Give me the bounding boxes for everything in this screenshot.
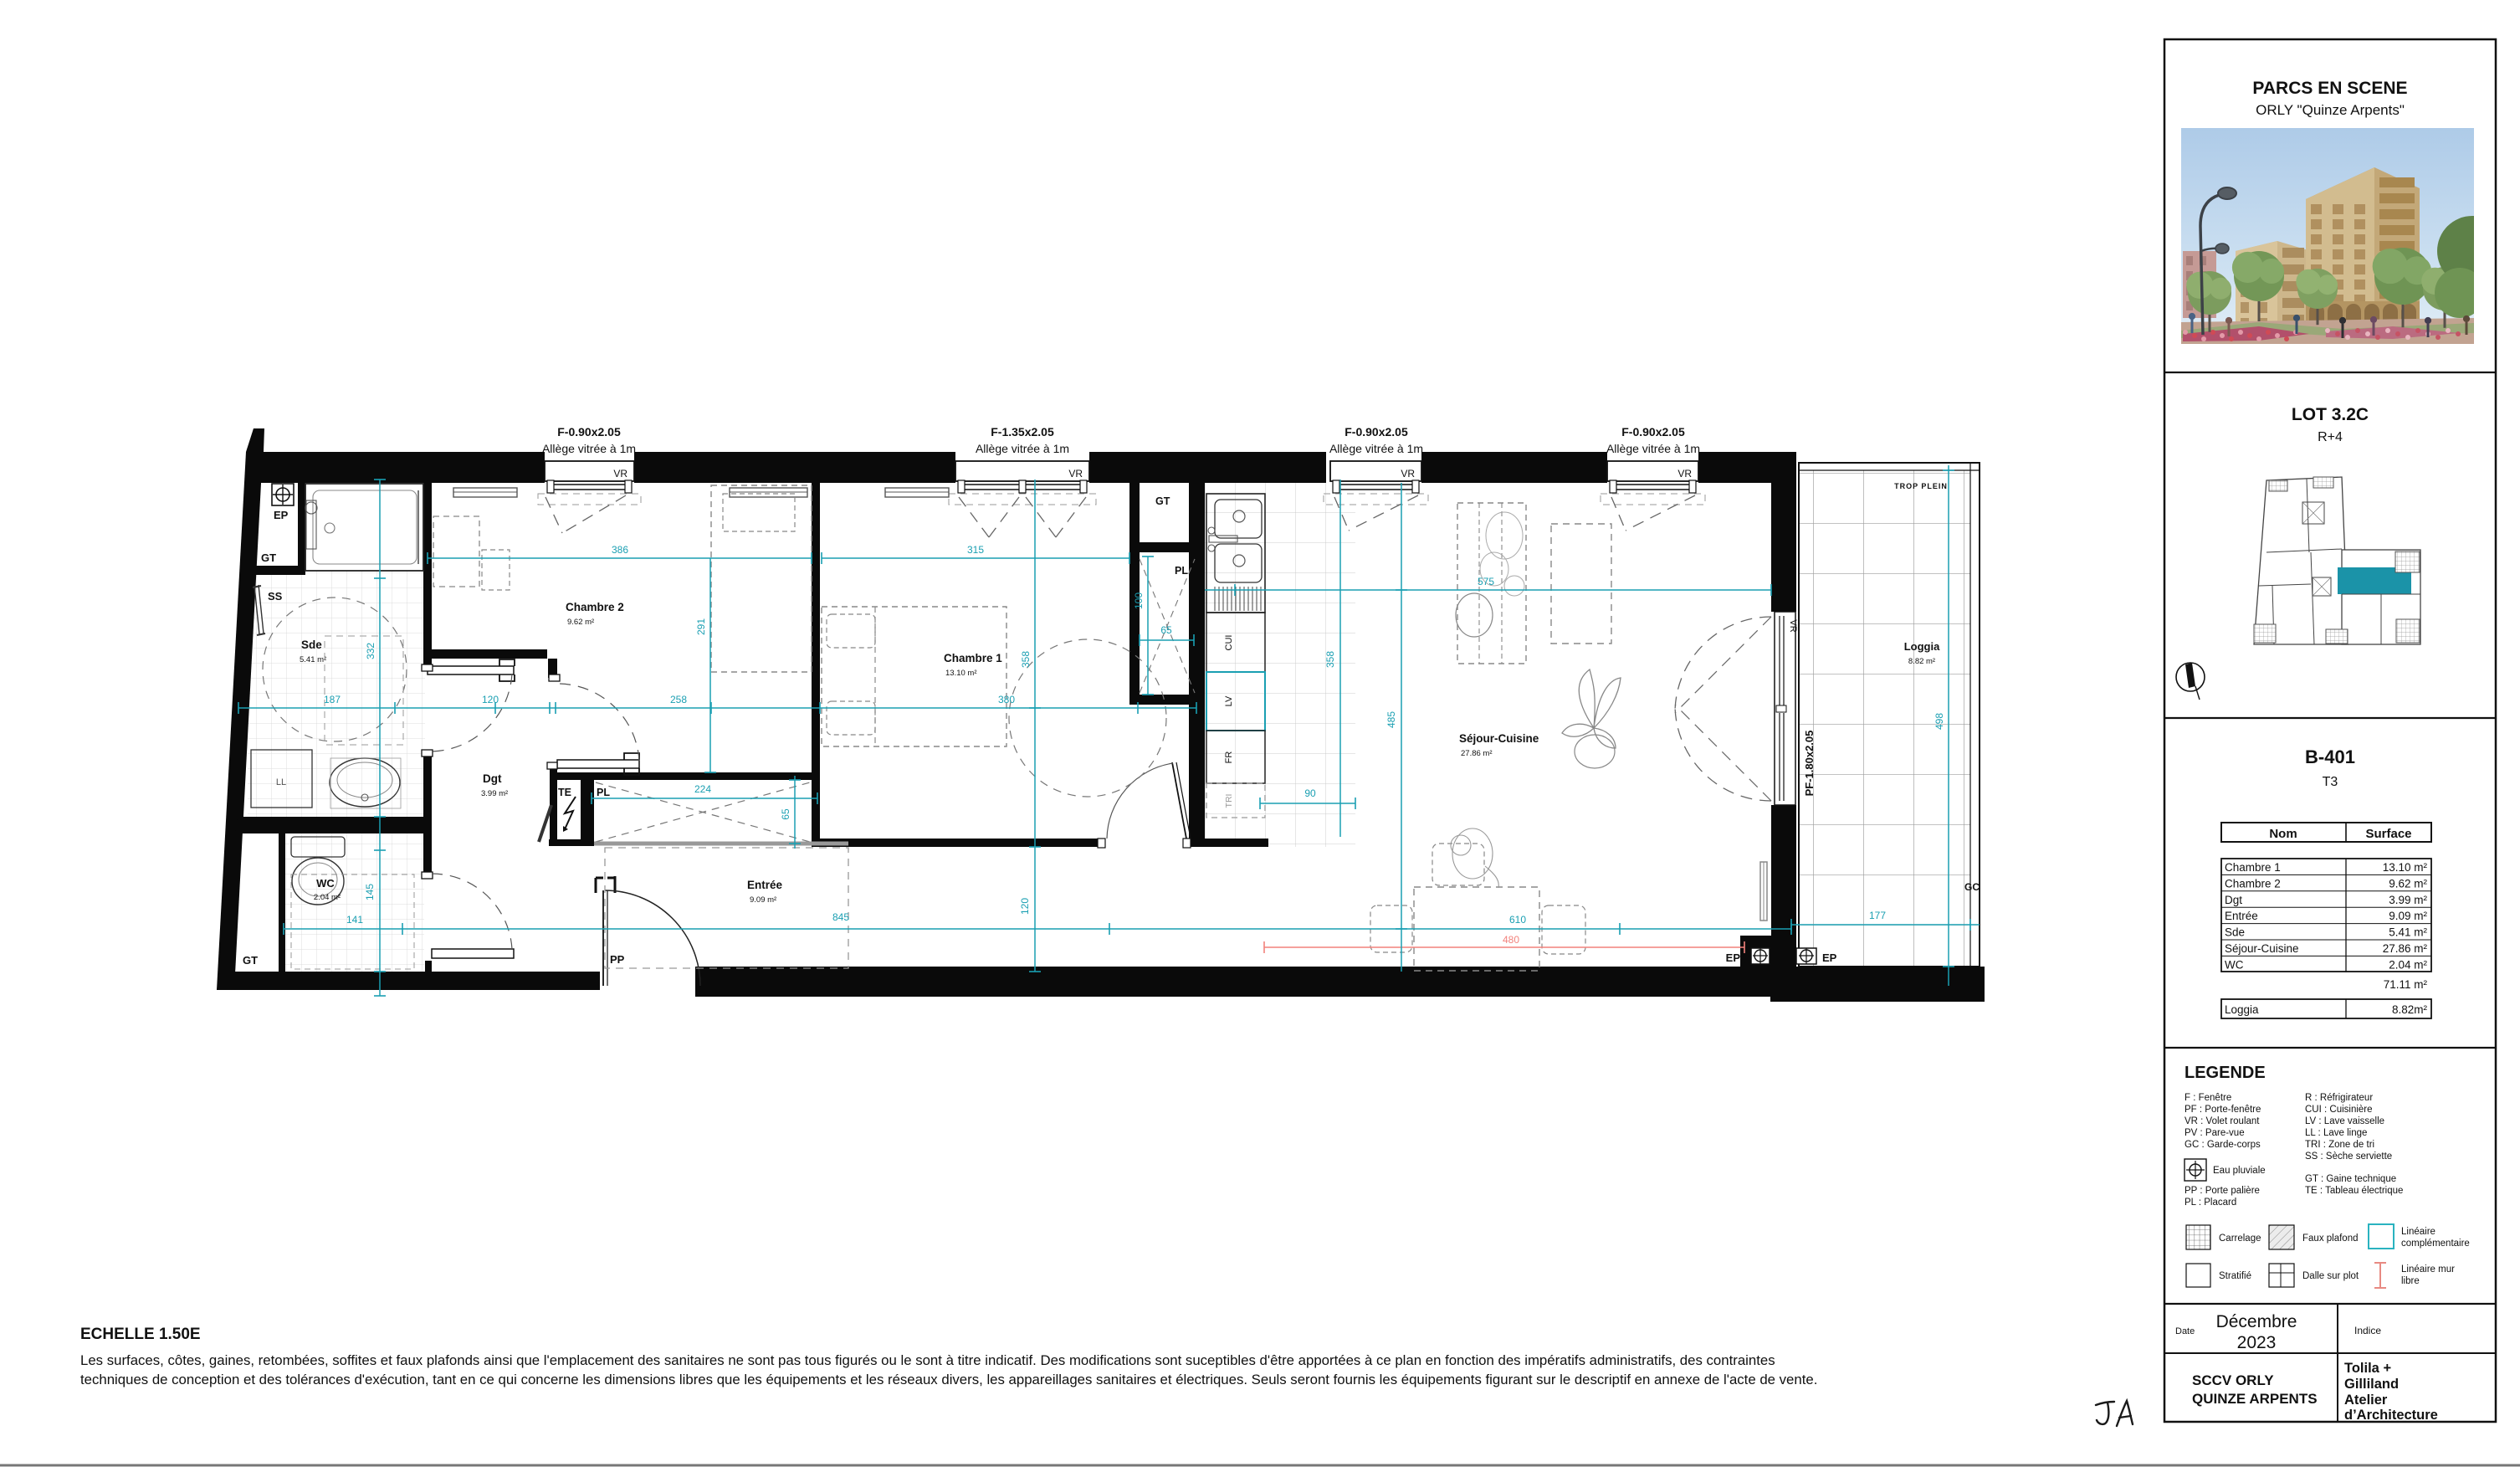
svg-text:VR: VR bbox=[1401, 468, 1415, 480]
svg-text:332: 332 bbox=[365, 643, 376, 659]
svg-text:Allège vitrée à 1m: Allège vitrée à 1m bbox=[1606, 442, 1700, 455]
svg-text:27.86 m²: 27.86 m² bbox=[2383, 942, 2428, 955]
svg-text:480: 480 bbox=[1503, 934, 1519, 946]
svg-text:Chambre 2: Chambre 2 bbox=[2225, 877, 2281, 890]
svg-text:5.41 m²: 5.41 m² bbox=[2389, 926, 2427, 939]
svg-text:GC : Garde-corps: GC : Garde-corps bbox=[2185, 1140, 2261, 1150]
svg-text:2.04 m²: 2.04 m² bbox=[314, 893, 341, 902]
svg-text:Allège vitrée à 1m: Allège vitrée à 1m bbox=[542, 442, 636, 455]
svg-text:8.82m²: 8.82m² bbox=[2392, 1003, 2428, 1016]
svg-text:Carrelage: Carrelage bbox=[2219, 1234, 2261, 1244]
svg-text:PL: PL bbox=[597, 787, 610, 798]
svg-text:CUI: CUI bbox=[1224, 635, 1234, 651]
svg-text:3.99 m²: 3.99 m² bbox=[2389, 894, 2427, 906]
svg-text:Dgt: Dgt bbox=[483, 772, 502, 785]
svg-text:TE: TE bbox=[558, 787, 571, 798]
svg-text:R : Réfrigirateur: R : Réfrigirateur bbox=[2305, 1093, 2373, 1103]
svg-text:EP: EP bbox=[274, 509, 289, 521]
svg-text:TROP PLEIN: TROP PLEIN bbox=[1894, 482, 1948, 490]
svg-text:LEGENDE: LEGENDE bbox=[2185, 1064, 2266, 1082]
svg-text:SCCV ORLY: SCCV ORLY bbox=[2192, 1372, 2274, 1388]
svg-text:FR: FR bbox=[1224, 751, 1234, 764]
svg-text:Allège vitrée à 1m: Allège vitrée à 1m bbox=[976, 442, 1069, 455]
svg-text:2023: 2023 bbox=[2237, 1333, 2277, 1352]
svg-text:ORLY "Quinze Arpents": ORLY "Quinze Arpents" bbox=[2256, 102, 2405, 118]
svg-text:498: 498 bbox=[1934, 713, 1945, 730]
svg-text:Dalle sur plot: Dalle sur plot bbox=[2302, 1271, 2359, 1281]
svg-text:Décembre: Décembre bbox=[2216, 1312, 2297, 1331]
svg-text:Eau pluviale: Eau pluviale bbox=[2213, 1166, 2266, 1176]
svg-text:LV: LV bbox=[1224, 695, 1234, 706]
svg-text:Date: Date bbox=[2175, 1326, 2195, 1336]
svg-text:Les surfaces, côtes, gaines, r: Les surfaces, côtes, gaines, retombées, … bbox=[80, 1352, 1775, 1368]
svg-text:TE : Tableau électrique: TE : Tableau électrique bbox=[2305, 1186, 2403, 1196]
svg-text:GT: GT bbox=[243, 954, 258, 967]
svg-text:120: 120 bbox=[1019, 898, 1031, 915]
svg-text:Stratifié: Stratifié bbox=[2219, 1271, 2251, 1281]
svg-text:LL : Lave linge: LL : Lave linge bbox=[2305, 1128, 2367, 1138]
svg-text:Indice: Indice bbox=[2354, 1325, 2381, 1336]
svg-text:EP: EP bbox=[1822, 951, 1837, 964]
svg-text:5.41 m²: 5.41 m² bbox=[300, 655, 326, 664]
svg-text:CUI : Cuisinière: CUI : Cuisinière bbox=[2305, 1105, 2373, 1115]
svg-text:complémentaire: complémentaire bbox=[2401, 1239, 2470, 1249]
svg-text:Gilliland: Gilliland bbox=[2344, 1377, 2399, 1392]
svg-text:R+4: R+4 bbox=[2318, 430, 2343, 444]
svg-text:27.86 m²: 27.86 m² bbox=[1461, 749, 1493, 758]
svg-text:F-0.90x2.05: F-0.90x2.05 bbox=[1621, 425, 1685, 439]
svg-text:291: 291 bbox=[695, 618, 707, 635]
svg-text:PV : Pare-vue: PV : Pare-vue bbox=[2185, 1128, 2245, 1138]
svg-text:SS: SS bbox=[268, 590, 283, 603]
svg-text:Chambre 1: Chambre 1 bbox=[944, 652, 1002, 664]
svg-text:845: 845 bbox=[832, 911, 849, 923]
svg-text:Linéaire mur: Linéaire mur bbox=[2401, 1264, 2455, 1275]
svg-text:145: 145 bbox=[364, 884, 376, 900]
svg-text:8.82 m²: 8.82 m² bbox=[1908, 657, 1935, 666]
svg-text:PF-1.80x2.05: PF-1.80x2.05 bbox=[1803, 731, 1816, 797]
svg-text:LOT 3.2C: LOT 3.2C bbox=[2292, 405, 2369, 424]
svg-text:LV : Lave vaisselle: LV : Lave vaisselle bbox=[2305, 1116, 2384, 1126]
svg-text:9.09 m²: 9.09 m² bbox=[2389, 910, 2427, 922]
svg-text:358: 358 bbox=[1324, 651, 1336, 668]
svg-text:Surface: Surface bbox=[2365, 827, 2411, 841]
svg-text:LL: LL bbox=[276, 777, 286, 787]
svg-text:EP: EP bbox=[1726, 951, 1741, 964]
svg-text:VR: VR bbox=[613, 468, 627, 480]
svg-text:485: 485 bbox=[1385, 711, 1397, 728]
svg-text:Allège vitrée à 1m: Allège vitrée à 1m bbox=[1329, 442, 1423, 455]
svg-text:PP : Porte palière: PP : Porte palière bbox=[2185, 1186, 2260, 1196]
svg-text:Sde: Sde bbox=[301, 639, 322, 651]
svg-text:F-0.90x2.05: F-0.90x2.05 bbox=[1345, 425, 1408, 439]
svg-text:d’Architecture: d’Architecture bbox=[2344, 1408, 2438, 1423]
svg-text:177: 177 bbox=[1869, 910, 1886, 921]
svg-text:380: 380 bbox=[998, 694, 1015, 705]
svg-text:2.04 m²: 2.04 m² bbox=[2389, 958, 2427, 971]
svg-text:F : Fenêtre: F : Fenêtre bbox=[2185, 1093, 2231, 1103]
svg-text:90: 90 bbox=[1304, 787, 1316, 799]
svg-text:120: 120 bbox=[482, 694, 499, 705]
svg-text:F-0.90x2.05: F-0.90x2.05 bbox=[557, 425, 621, 439]
svg-text:Séjour-Cuisine: Séjour-Cuisine bbox=[2225, 942, 2299, 955]
svg-text:224: 224 bbox=[694, 783, 711, 795]
svg-text:9.62 m²: 9.62 m² bbox=[2389, 877, 2427, 890]
svg-text:610: 610 bbox=[1509, 914, 1526, 926]
svg-text:13.10 m²: 13.10 m² bbox=[945, 669, 977, 678]
svg-text:Loggia: Loggia bbox=[2225, 1003, 2259, 1016]
svg-text:VR: VR bbox=[1788, 619, 1798, 632]
svg-text:71.11 m²: 71.11 m² bbox=[2384, 978, 2428, 991]
svg-text:B-401: B-401 bbox=[2305, 746, 2355, 767]
svg-text:358: 358 bbox=[1020, 651, 1032, 668]
svg-text:TRI : Zone de tri: TRI : Zone de tri bbox=[2305, 1140, 2374, 1150]
svg-text:3.99 m²: 3.99 m² bbox=[481, 789, 508, 798]
svg-text:T3: T3 bbox=[2323, 775, 2338, 789]
svg-text:libre: libre bbox=[2401, 1276, 2420, 1286]
svg-text:PP: PP bbox=[610, 953, 625, 966]
svg-text:Entrée: Entrée bbox=[2225, 910, 2258, 922]
svg-text:Faux plafond: Faux plafond bbox=[2302, 1234, 2359, 1244]
svg-text:Dgt: Dgt bbox=[2225, 894, 2242, 906]
svg-text:PARCS EN SCENE: PARCS EN SCENE bbox=[2252, 79, 2407, 98]
svg-text:386: 386 bbox=[612, 544, 628, 556]
svg-text:GT : Gaine technique: GT : Gaine technique bbox=[2305, 1174, 2396, 1184]
svg-text:13.10 m²: 13.10 m² bbox=[2383, 861, 2428, 874]
svg-text:F-1.35x2.05: F-1.35x2.05 bbox=[991, 425, 1054, 439]
svg-text:315: 315 bbox=[967, 544, 984, 556]
svg-text:SS : Sèche serviette: SS : Sèche serviette bbox=[2305, 1151, 2392, 1162]
svg-text:ECHELLE 1.50E: ECHELLE 1.50E bbox=[80, 1326, 201, 1343]
svg-text:Atelier: Atelier bbox=[2344, 1393, 2388, 1408]
svg-text:VR: VR bbox=[1677, 468, 1692, 480]
svg-text:Chambre 1: Chambre 1 bbox=[2225, 861, 2281, 874]
svg-text:9.09 m²: 9.09 m² bbox=[750, 895, 776, 905]
svg-text:Séjour-Cuisine: Séjour-Cuisine bbox=[1459, 732, 1539, 745]
svg-text:PL: PL bbox=[1175, 565, 1188, 577]
svg-text:Linéaire: Linéaire bbox=[2401, 1227, 2435, 1237]
svg-text:WC: WC bbox=[2225, 958, 2244, 971]
svg-text:Entrée: Entrée bbox=[747, 879, 783, 891]
svg-text:Chambre 2: Chambre 2 bbox=[566, 601, 624, 613]
svg-text:Nom: Nom bbox=[2269, 827, 2297, 841]
svg-text:VR: VR bbox=[1068, 468, 1083, 480]
svg-text:PL : Placard: PL : Placard bbox=[2185, 1198, 2236, 1208]
svg-text:TRI: TRI bbox=[1224, 794, 1234, 808]
svg-text:Loggia: Loggia bbox=[1904, 640, 1940, 653]
svg-text:575: 575 bbox=[1478, 576, 1494, 587]
svg-text:Tolila +: Tolila + bbox=[2344, 1361, 2391, 1376]
svg-text:WC: WC bbox=[316, 877, 335, 890]
svg-text:258: 258 bbox=[670, 694, 687, 705]
svg-text:GT: GT bbox=[1155, 495, 1170, 507]
svg-text:techniques de conception et de: techniques de conception et des toléranc… bbox=[80, 1372, 1817, 1387]
svg-text:VR : Volet roulant: VR : Volet roulant bbox=[2185, 1116, 2260, 1126]
svg-text:141: 141 bbox=[346, 914, 363, 926]
svg-text:PF : Porte-fenêtre: PF : Porte-fenêtre bbox=[2185, 1105, 2261, 1115]
svg-text:65: 65 bbox=[1160, 624, 1172, 636]
svg-text:65: 65 bbox=[780, 808, 791, 820]
svg-text:9.62 m²: 9.62 m² bbox=[567, 618, 594, 627]
svg-text:100: 100 bbox=[1133, 592, 1145, 609]
svg-text:QUINZE ARPENTS: QUINZE ARPENTS bbox=[2192, 1391, 2318, 1407]
svg-text:Sde: Sde bbox=[2225, 926, 2245, 939]
svg-text:GC: GC bbox=[1964, 881, 1980, 893]
svg-text:GT: GT bbox=[261, 551, 276, 564]
svg-text:187: 187 bbox=[324, 694, 341, 705]
